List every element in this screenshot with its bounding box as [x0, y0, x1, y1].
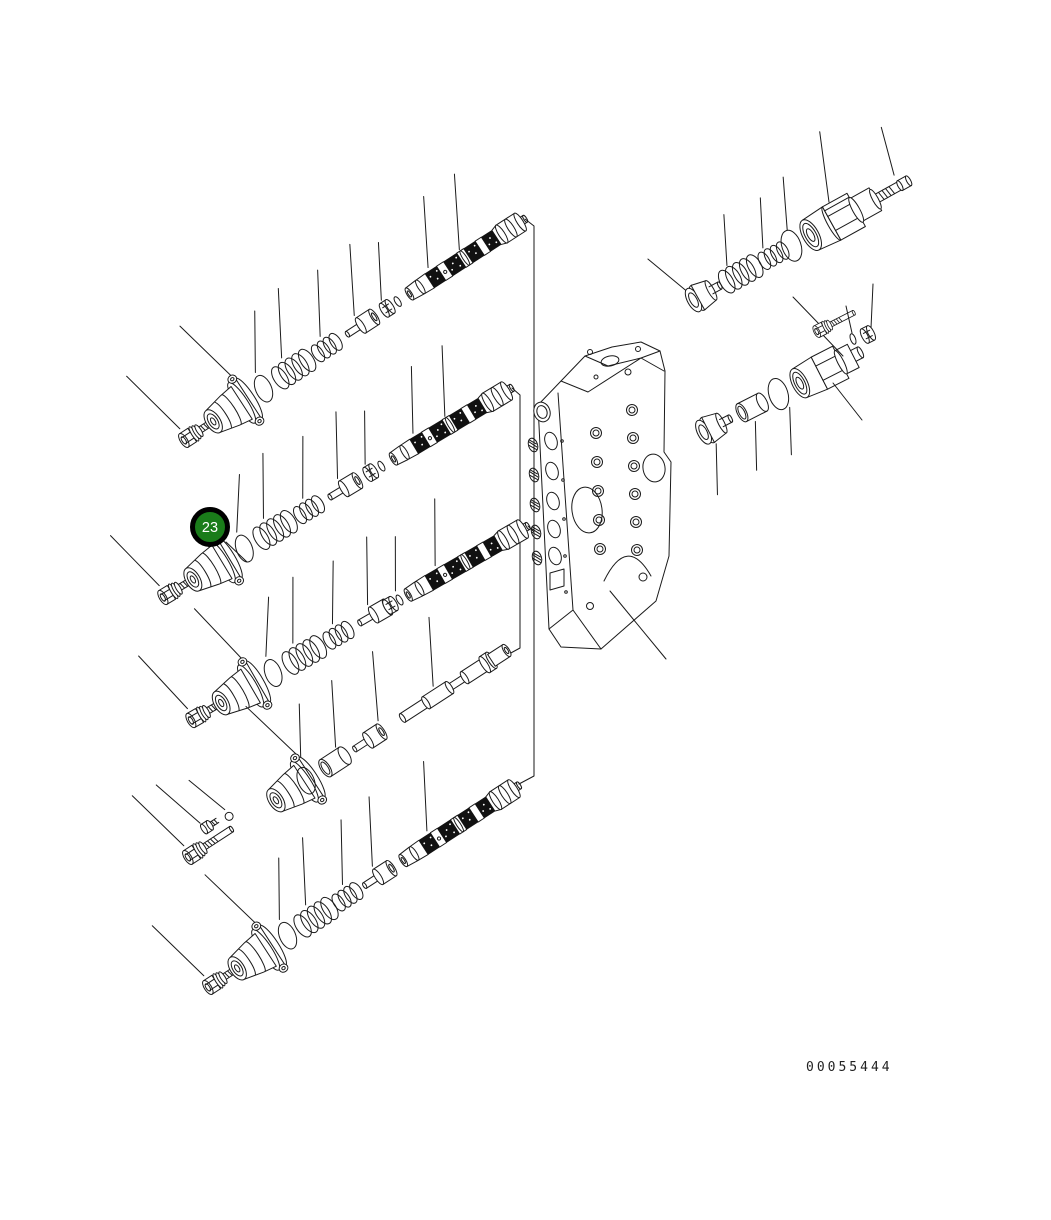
- leader-line: [737, 422, 776, 471]
- spring-retainer: [349, 722, 389, 757]
- leader-line: [372, 537, 419, 591]
- leader-line: [705, 215, 747, 266]
- outer-spring: [279, 633, 330, 677]
- spool-assembly-row-1: [120, 136, 543, 472]
- axis-line-1: [519, 219, 534, 784]
- leader-line: [194, 601, 241, 667]
- spring-retainer: [341, 308, 381, 343]
- leader-line: [400, 617, 461, 686]
- control-spool: [386, 378, 519, 469]
- leader-line: [341, 411, 388, 464]
- relief-valve-lower: [681, 335, 890, 494]
- inner-spring: [329, 880, 365, 913]
- leader-line: [338, 537, 396, 605]
- leader-line: [132, 787, 184, 854]
- leader-line: [320, 244, 383, 315]
- inner-spring: [320, 619, 356, 651]
- leader-line: [793, 297, 820, 325]
- leader-line: [394, 762, 456, 831]
- spring-retainer: [324, 471, 365, 505]
- parts-catalog-page: 23 00055444: [0, 0, 1051, 1220]
- plug: [692, 405, 738, 447]
- leader-line: [305, 561, 360, 624]
- bushing-sleeve: [316, 745, 354, 779]
- leader-line: [871, 284, 873, 328]
- outer-spring: [268, 346, 319, 391]
- relief-cartridge: [794, 163, 919, 255]
- leader-line: [345, 652, 406, 721]
- spool-assembly-row-3: [132, 443, 543, 752]
- leader-line: [871, 127, 905, 175]
- back-up-ring: [376, 460, 386, 472]
- outer-spring: [249, 508, 300, 553]
- leader-line: [772, 407, 809, 454]
- leader-line: [227, 311, 283, 373]
- leader-line: [383, 366, 441, 433]
- outer-spring: [290, 894, 341, 939]
- spool-assembly-row-2: [111, 319, 528, 630]
- leader-line: [697, 444, 737, 495]
- leader-line: [313, 820, 371, 885]
- leader-line: [741, 198, 782, 248]
- back-up-ring: [393, 296, 403, 308]
- leader-line: [833, 383, 862, 420]
- leader-line: [304, 681, 363, 748]
- leader-line: [127, 368, 180, 438]
- reducing-spool: [396, 641, 514, 727]
- leader-line: [180, 317, 232, 384]
- control-spool: [395, 776, 526, 871]
- control-spool: [401, 516, 534, 605]
- steel-ball: [224, 811, 235, 822]
- leader-line: [274, 838, 334, 905]
- leader-line: [264, 577, 321, 643]
- leader-line: [111, 527, 160, 594]
- leader-line: [251, 858, 307, 920]
- valve-body-outline: [538, 342, 671, 649]
- leader-line: [139, 648, 188, 717]
- leader-line: [340, 797, 402, 866]
- spring-retainer: [359, 859, 399, 894]
- end-cover: [192, 371, 270, 450]
- exploded-parts-diagram: 23 00055444: [0, 0, 1051, 1220]
- leader-line: [764, 177, 807, 230]
- leader-line: [308, 412, 366, 479]
- leader-line: [235, 453, 292, 518]
- control-spool: [402, 209, 533, 304]
- leader-line: [241, 597, 294, 656]
- poppet-plug: [681, 273, 727, 316]
- leader-line: [189, 773, 225, 818]
- leader-line: [249, 288, 311, 357]
- relief-valve-upper: [634, 105, 919, 327]
- leader-line: [289, 270, 349, 336]
- leader-line: [354, 243, 406, 301]
- bushing-sleeve: [733, 391, 771, 423]
- retaining-nut: [858, 324, 877, 344]
- callout-number: 23: [202, 520, 218, 536]
- end-cover: [216, 918, 294, 997]
- end-cover: [201, 654, 278, 732]
- plug-screw: [199, 816, 220, 835]
- leader-line: [406, 499, 464, 566]
- valve-body: [527, 342, 671, 659]
- leader-line: [797, 132, 852, 202]
- leader-line: [394, 196, 457, 267]
- outer-spring: [715, 252, 766, 296]
- leader-line: [648, 250, 686, 299]
- drawing-number: 00055444: [806, 1060, 893, 1075]
- relief-cartridge: [785, 335, 870, 402]
- leader-line: [152, 917, 204, 984]
- spool-assembly-row-4: [125, 569, 524, 889]
- back-up-ring: [849, 333, 857, 345]
- leader-line: [205, 866, 255, 932]
- collar-nut: [361, 462, 380, 482]
- leader-line: [275, 436, 330, 498]
